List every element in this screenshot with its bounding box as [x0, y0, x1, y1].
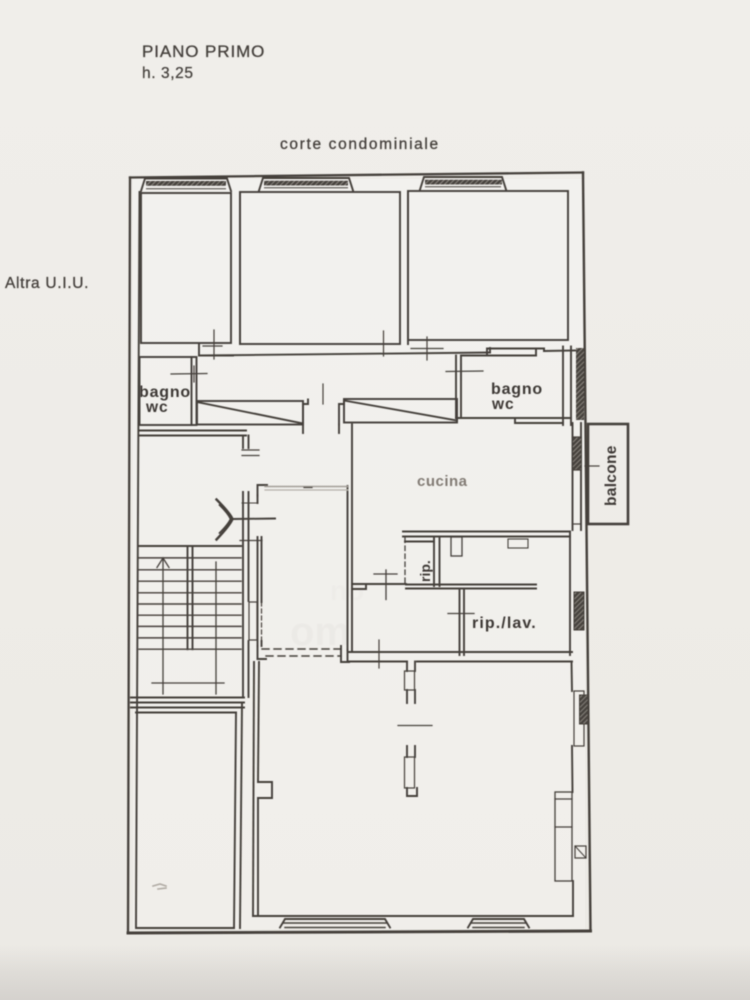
svg-text:rip./lav.: rip./lav. — [472, 615, 537, 632]
svg-text:PIANO PRIMO: PIANO PRIMO — [142, 42, 265, 61]
svg-text:balcone: balcone — [603, 445, 620, 506]
svg-text:om: om — [290, 610, 350, 654]
svg-text:corte condominiale: corte condominiale — [280, 136, 440, 153]
svg-text:no: no — [330, 575, 364, 606]
svg-text:wc: wc — [491, 396, 514, 413]
svg-text:rip.: rip. — [417, 560, 433, 582]
svg-text:h. 3,25: h. 3,25 — [142, 65, 194, 82]
svg-text:cucina: cucina — [417, 473, 468, 490]
svg-text:Altra U.I.U.: Altra U.I.U. — [5, 275, 89, 292]
svg-text:wc: wc — [145, 399, 168, 416]
